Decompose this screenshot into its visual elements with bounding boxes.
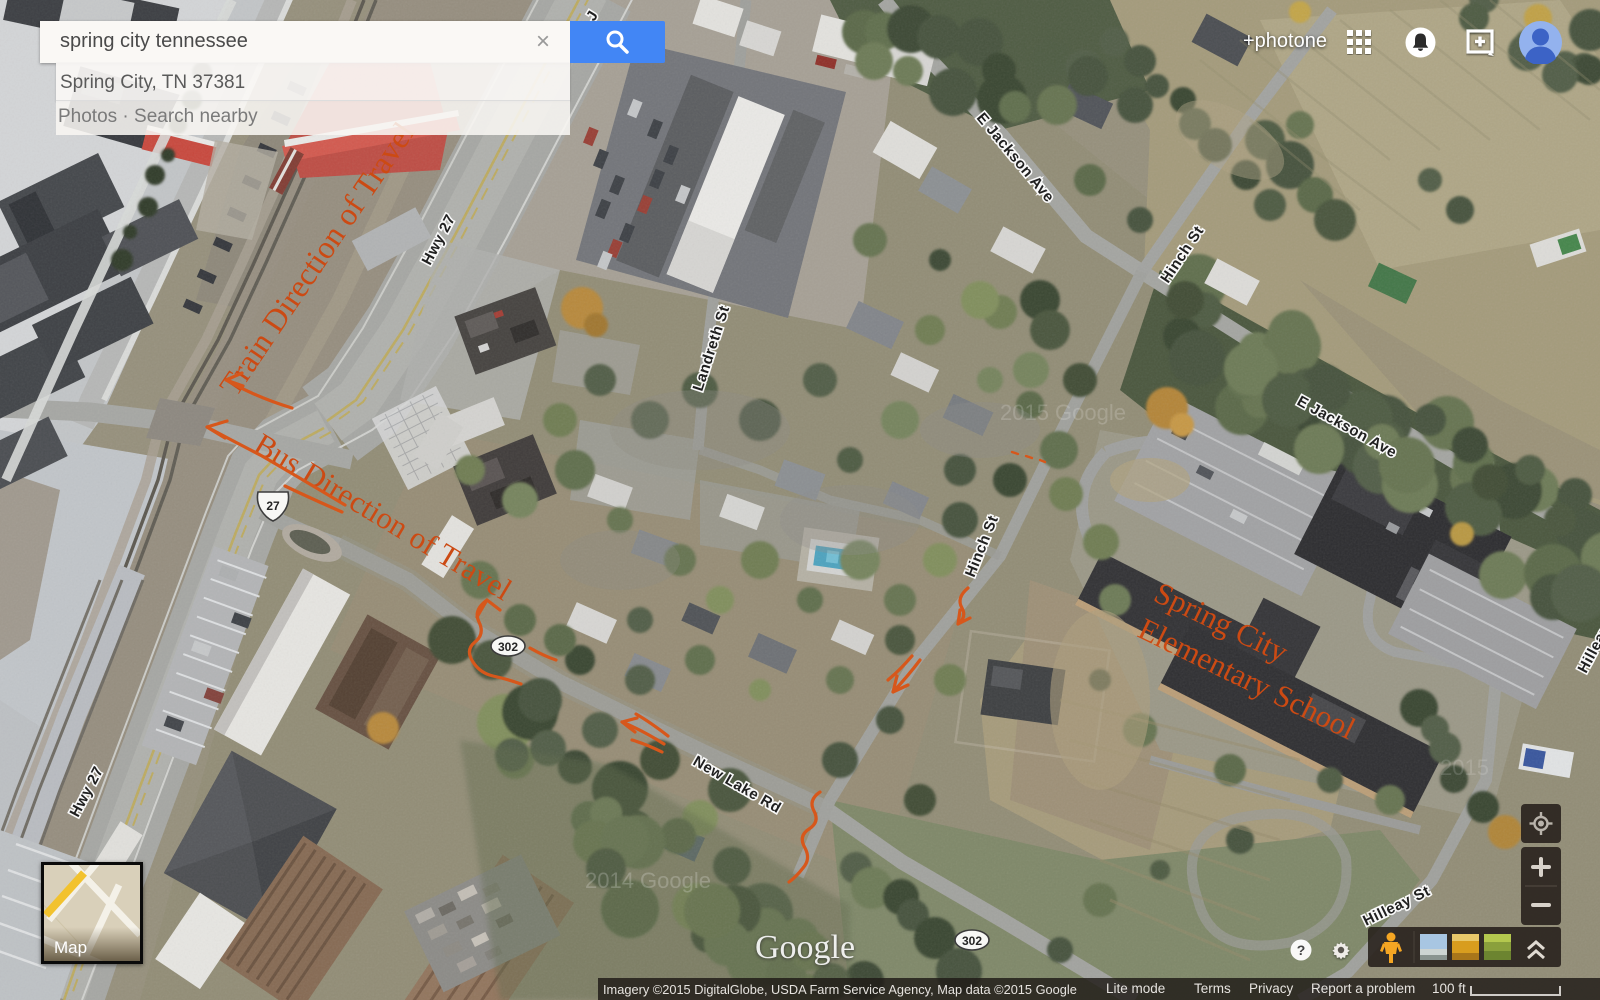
- svg-text:302: 302: [962, 934, 982, 948]
- svg-text:Map: Map: [54, 938, 87, 957]
- svg-text:Google: Google: [755, 929, 855, 966]
- svg-text:302: 302: [498, 640, 518, 654]
- svg-text:2015: 2015: [1440, 755, 1489, 780]
- svg-text:2014 Google: 2014 Google: [585, 868, 711, 893]
- svg-text:27: 27: [266, 499, 280, 513]
- svg-text:?: ?: [1297, 942, 1306, 958]
- svg-text:2015 Google: 2015 Google: [1000, 400, 1126, 425]
